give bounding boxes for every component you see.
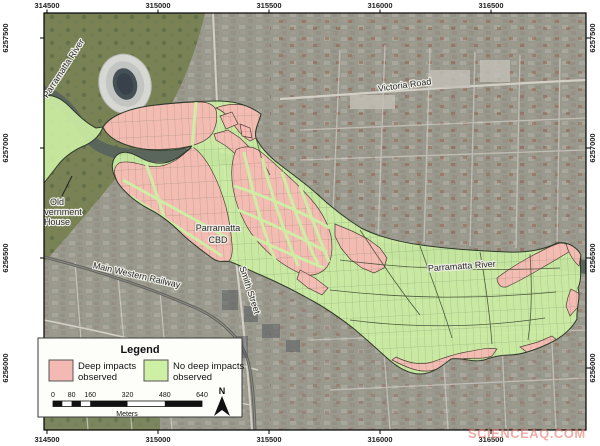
- axis-right-1: 6257500: [588, 23, 597, 52]
- axis-left-1: 6257500: [1, 23, 10, 52]
- label-cbd-1: Parramatta: [196, 223, 241, 233]
- label-ogh-3: House: [44, 217, 70, 227]
- scale-tick-640: 640: [196, 392, 208, 399]
- axis-bottom-3: 315500: [256, 435, 281, 444]
- axis-left-4: 6256000: [1, 353, 10, 382]
- axis-left-2: 6257000: [1, 133, 10, 162]
- scale-tick-0: 0: [51, 392, 55, 399]
- legend: Legend Deep impacts observed No deep imp…: [38, 338, 245, 418]
- legend-swatch-no-deep-impacts: [144, 360, 168, 381]
- legend-label-deep-2: observed: [78, 372, 117, 383]
- axis-bottom-4: 316000: [367, 435, 392, 444]
- map-figure: Parramatta River Victoria Road Old Gover…: [0, 0, 600, 446]
- axis-right-2: 6257000: [588, 133, 597, 162]
- axis-top-4: 316000: [367, 1, 392, 10]
- watermark: SCIENCEAQ.COM: [468, 426, 586, 441]
- axis-top-3: 315500: [256, 1, 281, 10]
- scale-tick-160: 160: [84, 392, 96, 399]
- scale-tick-320: 320: [122, 392, 134, 399]
- legend-label-nodeep-2: observed: [173, 372, 212, 383]
- legend-label-nodeep-1: No deep impacts: [173, 361, 245, 372]
- legend-label-deep-1: Deep impacts: [78, 361, 136, 372]
- axis-right-3: 6256500: [588, 243, 597, 272]
- axis-top-1: 314500: [34, 1, 59, 10]
- axis-top-2: 315000: [145, 1, 170, 10]
- axis-right-4: 6256000: [588, 353, 597, 382]
- axis-bottom-2: 315000: [145, 435, 170, 444]
- axis-top-5: 316500: [478, 1, 503, 10]
- label-ogh-2: Government: [32, 207, 82, 217]
- legend-title: Legend: [120, 344, 159, 356]
- scale-unit: Meters: [116, 411, 138, 418]
- north-label: N: [219, 386, 226, 396]
- label-ogh-1: Old: [50, 197, 64, 207]
- map-screenshot: Parramatta River Victoria Road Old Gover…: [0, 0, 600, 446]
- label-cbd-2: CBD: [208, 235, 228, 245]
- axis-left-3: 6256500: [1, 243, 10, 272]
- scale-tick-80: 80: [68, 392, 76, 399]
- axis-bottom-1: 314500: [34, 435, 59, 444]
- scale-tick-480: 480: [159, 392, 171, 399]
- legend-swatch-deep-impacts: [49, 360, 73, 381]
